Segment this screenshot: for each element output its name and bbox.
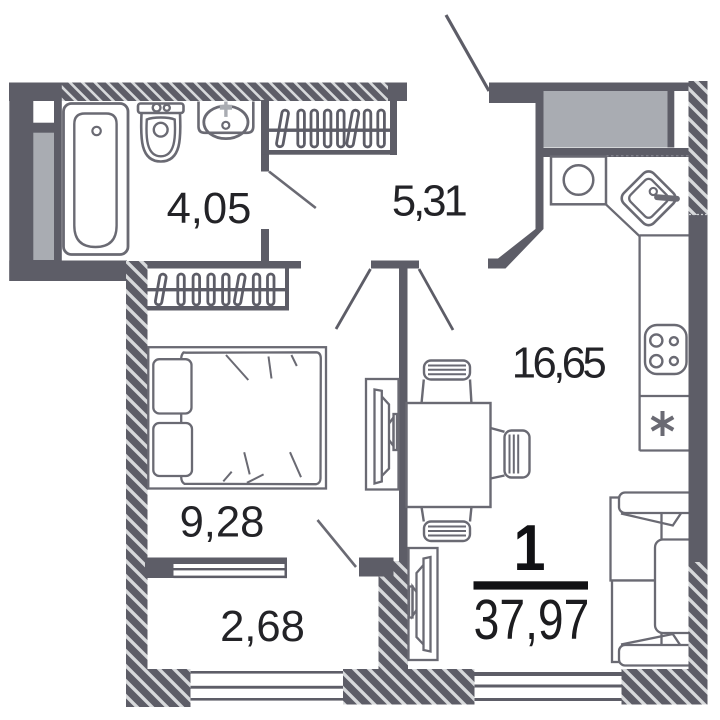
- svg-text:1: 1: [513, 512, 545, 585]
- svg-text:5,31: 5,31: [392, 177, 467, 225]
- svg-text:9,28: 9,28: [180, 499, 265, 547]
- svg-text:16,65: 16,65: [512, 339, 606, 387]
- svg-text:37,97: 37,97: [474, 587, 590, 651]
- svg-text:4,05: 4,05: [167, 185, 252, 233]
- svg-text:2,68: 2,68: [220, 603, 305, 651]
